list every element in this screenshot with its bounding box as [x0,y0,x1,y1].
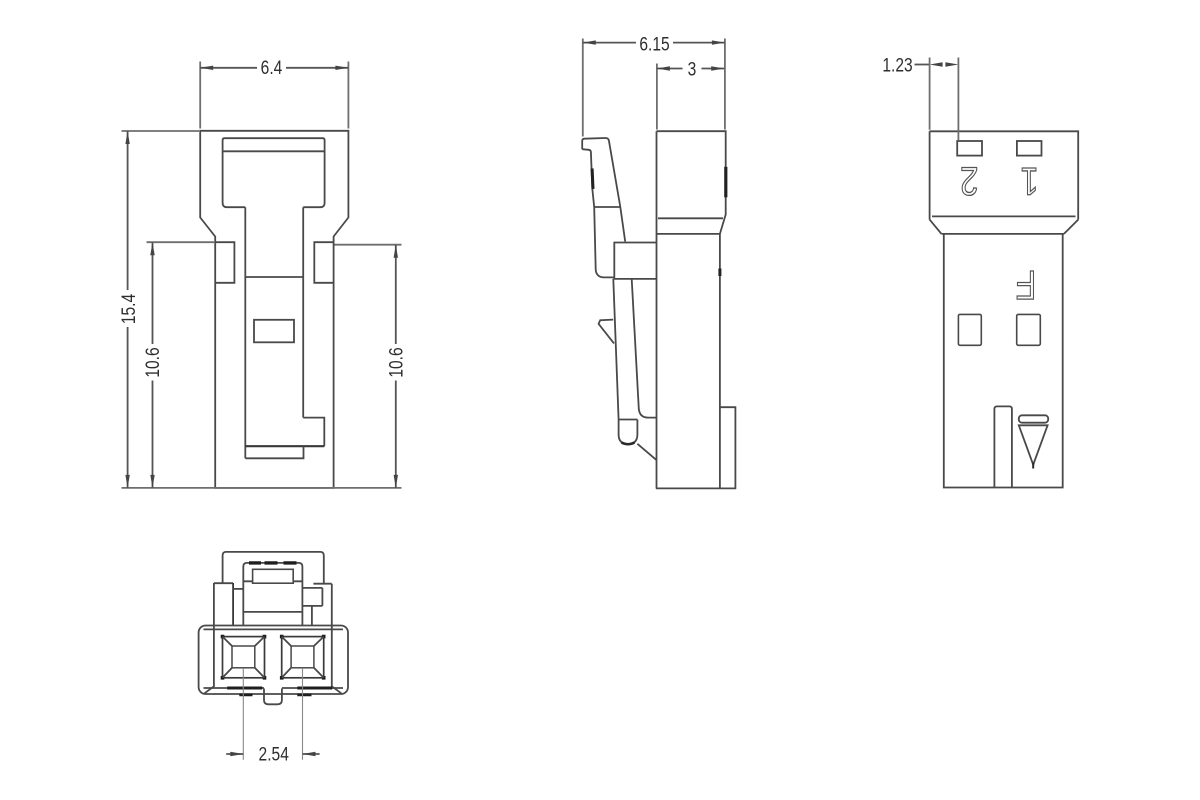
svg-text:1: 1 [1021,159,1039,203]
svg-text:F: F [1016,262,1037,308]
svg-text:10.6: 10.6 [385,347,407,377]
svg-text:3: 3 [688,58,697,80]
svg-text:2: 2 [960,159,978,204]
svg-text:2.54: 2.54 [259,743,290,765]
svg-text:6.4: 6.4 [261,56,283,78]
svg-text:6.15: 6.15 [639,33,669,55]
svg-text:15.4: 15.4 [118,294,140,325]
svg-text:1.23: 1.23 [882,54,912,76]
svg-text:10.6: 10.6 [142,347,164,377]
